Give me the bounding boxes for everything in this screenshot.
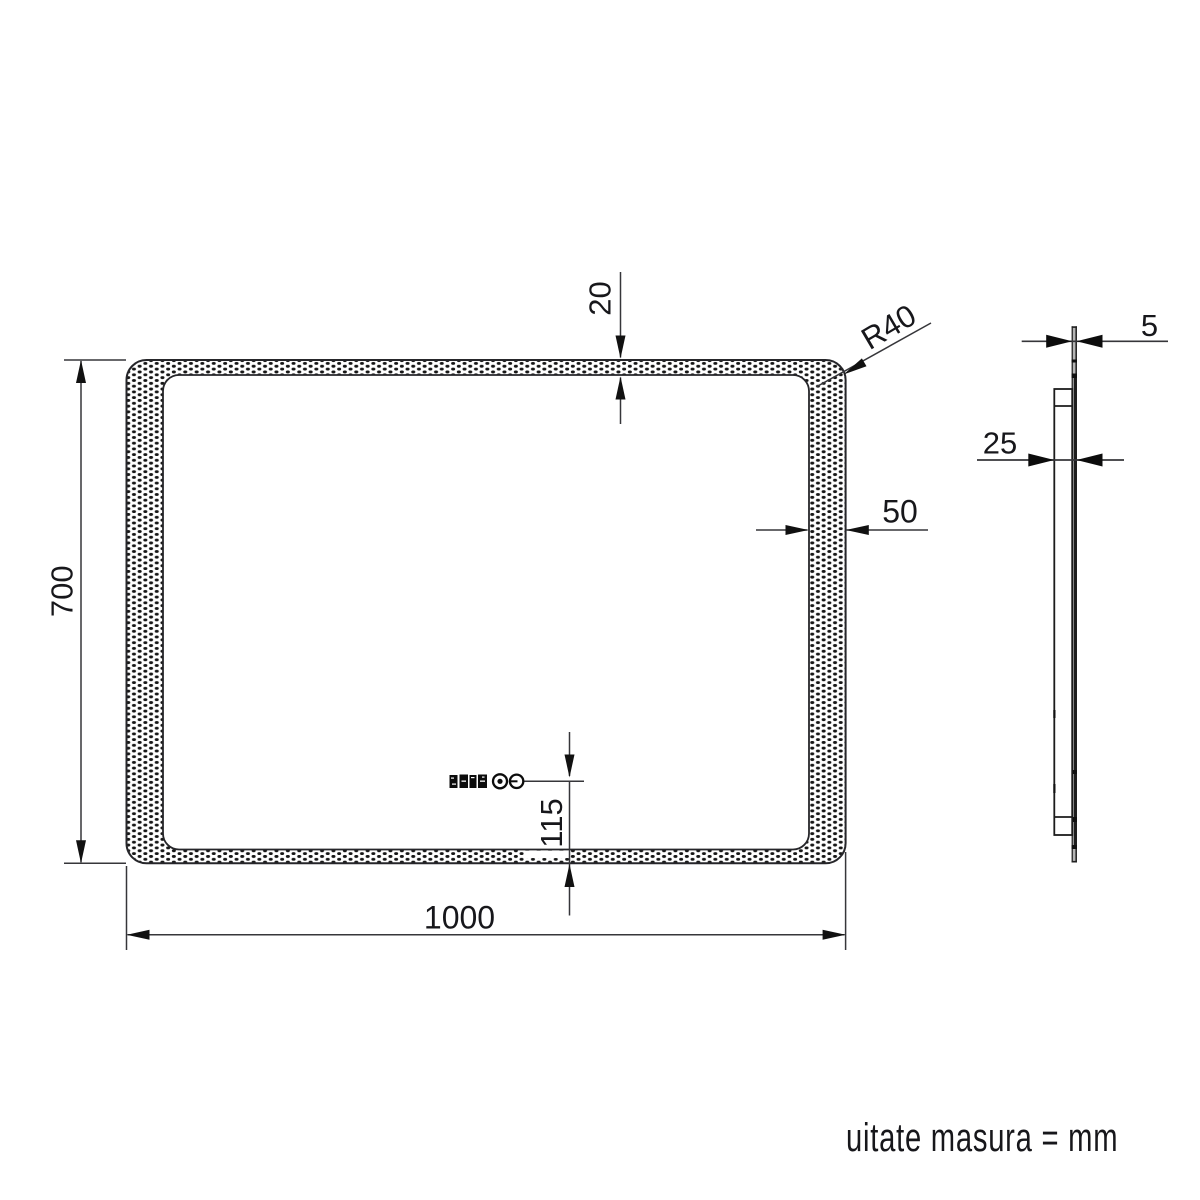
svg-text:20: 20 [583,281,618,315]
svg-text:1000: 1000 [424,900,495,936]
svg-text:115: 115 [534,798,569,847]
svg-text:5: 5 [1141,308,1158,343]
svg-text:50: 50 [882,494,918,530]
svg-text:uitate masura = mm: uitate masura = mm [846,1116,1118,1161]
svg-text:R40: R40 [855,297,922,356]
svg-text:25: 25 [983,426,1017,461]
svg-text:700: 700 [44,565,79,617]
